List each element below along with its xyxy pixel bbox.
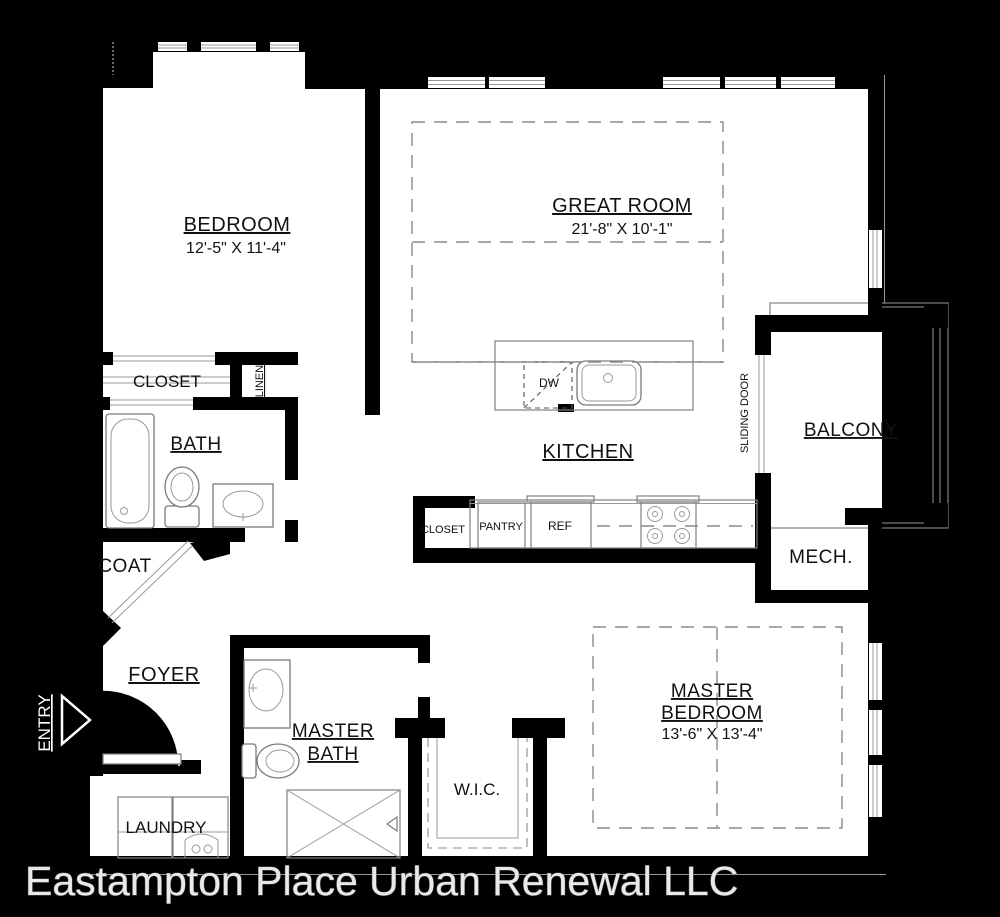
kitchen-sink	[577, 361, 641, 405]
pantry-label: PANTRY	[479, 521, 523, 533]
master-bedroom-window	[869, 643, 882, 817]
master-toilet	[242, 744, 299, 778]
foyer-label: FOYER	[128, 664, 199, 686]
master-vanity-sink	[244, 660, 290, 728]
bedroom-label: BEDROOM	[184, 214, 291, 236]
side-window	[869, 230, 882, 288]
bedroom-dims: 12'-5" X 11'-4"	[186, 240, 286, 257]
footer-company-name: Eastampton Place Urban Renewal LLC	[25, 858, 738, 904]
master-bath-label-1: MASTER	[292, 721, 374, 742]
wic-label: W.I.C.	[454, 780, 500, 799]
sliding-door-label: SLIDING DOOR	[739, 373, 751, 453]
closet-label: CLOSET	[133, 372, 201, 391]
sliding-door	[755, 355, 771, 473]
toilet	[165, 467, 199, 527]
ref-label: REF	[548, 519, 572, 533]
great-room-dims: 21'-8" X 10'-1"	[571, 221, 672, 238]
vanity-sink	[213, 484, 273, 527]
kitchen-label: KITCHEN	[542, 441, 633, 463]
bathtub	[106, 414, 154, 528]
bay-window	[158, 42, 299, 51]
coat-label: COAT	[98, 556, 151, 577]
master-bedroom-label-1: MASTER	[671, 681, 753, 702]
mech-label: MECH.	[789, 547, 853, 568]
kitchen-closet-label: CLOSET	[421, 524, 465, 536]
dw-label: DW	[539, 376, 560, 390]
master-bedroom-label-2: BEDROOM	[661, 703, 763, 724]
bath-label: BATH	[170, 434, 221, 455]
master-bedroom-dims: 13'-6" X 13'-4"	[661, 726, 762, 743]
master-bath-label-2: BATH	[307, 744, 358, 765]
entry-label: ENTRY	[35, 694, 54, 751]
balcony-post	[924, 503, 948, 527]
balcony-label: BALCONY	[804, 420, 898, 441]
laundry-label: LAUNDRY	[126, 818, 207, 837]
balcony-post	[924, 304, 948, 328]
linen-label: LINEN	[254, 365, 266, 397]
great-room-label: GREAT ROOM	[552, 195, 692, 217]
floor-plan: BEDROOM 12'-5" X 11'-4" GREAT ROOM 21'-8…	[0, 0, 1000, 917]
